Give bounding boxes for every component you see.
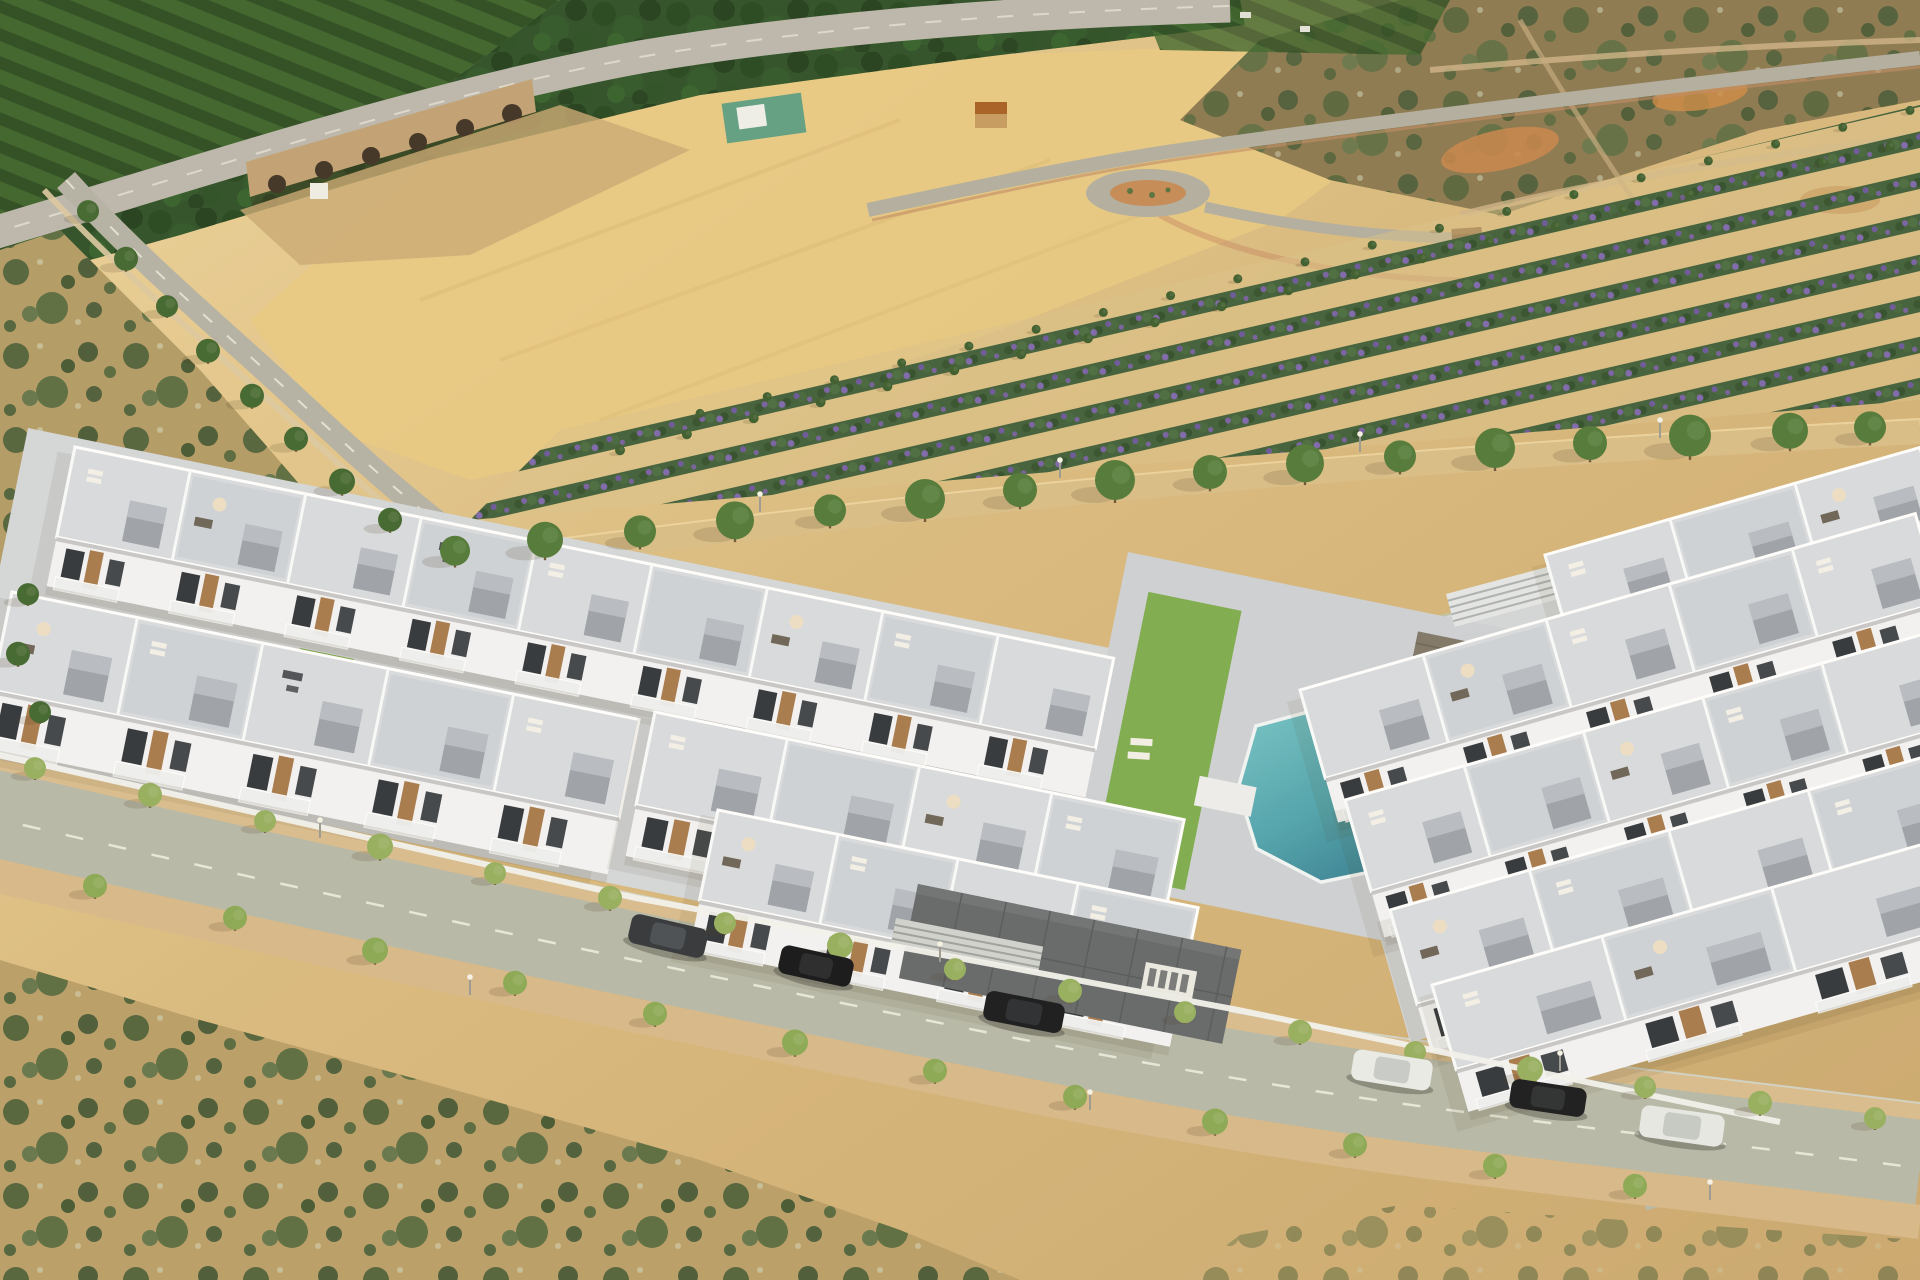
aerial-photo bbox=[0, 0, 1920, 1280]
photo-vignette bbox=[0, 0, 1920, 1280]
aerial-scene bbox=[0, 0, 1920, 1280]
